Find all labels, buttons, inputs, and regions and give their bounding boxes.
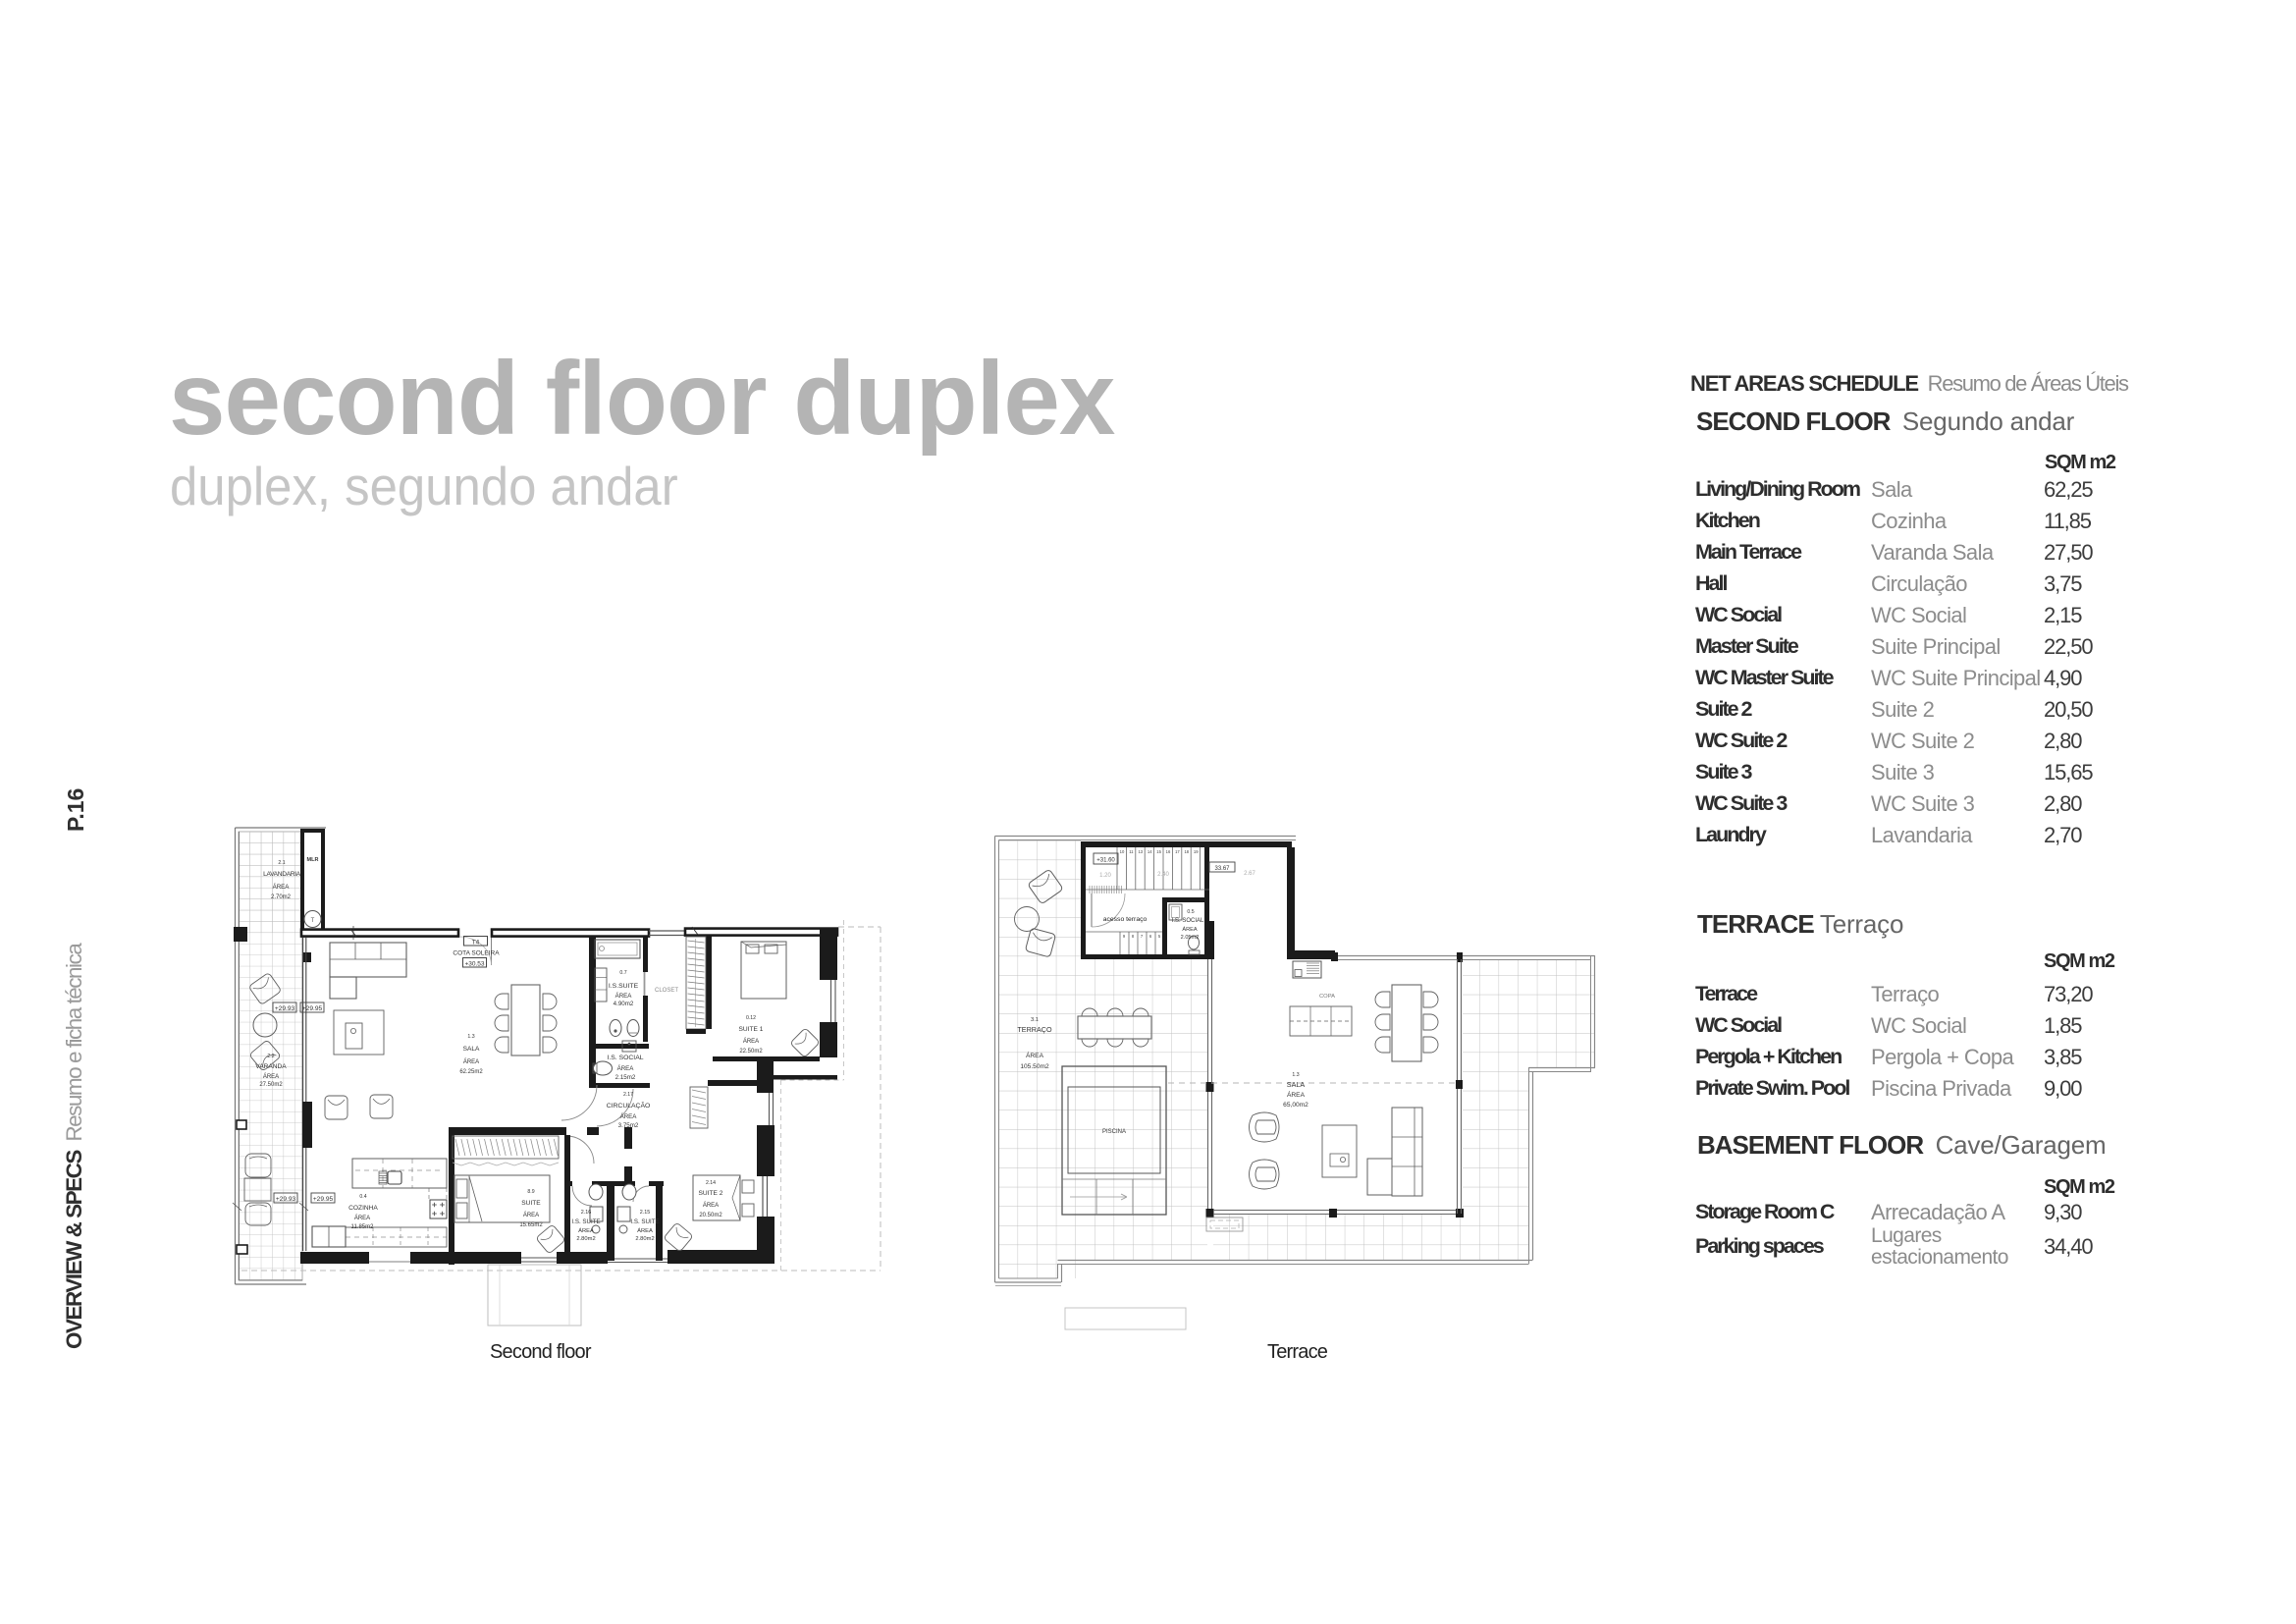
svg-text:2.05m2: 2.05m2 (1181, 935, 1200, 941)
svg-text:9: 9 (1123, 934, 1126, 939)
svg-text:acesso terraço: acesso terraço (1103, 916, 1148, 923)
svg-text:8.9: 8.9 (527, 1189, 534, 1195)
svg-text:+30.53: +30.53 (464, 960, 484, 967)
svg-text:LAVANDARIA: LAVANDARIA (263, 871, 301, 878)
svg-text:62.25m2: 62.25m2 (459, 1069, 483, 1075)
svg-text:6: 6 (1149, 934, 1152, 939)
svg-text:65,00m2: 65,00m2 (1283, 1102, 1308, 1109)
svg-text:0.7: 0.7 (619, 970, 626, 976)
svg-text:33.67: 33.67 (1214, 866, 1230, 872)
svg-text:27.50m2: 27.50m2 (259, 1082, 283, 1088)
svg-text:T4: T4 (472, 939, 480, 946)
svg-text:4.90m2: 4.90m2 (614, 1001, 634, 1007)
svg-text:2.1: 2.1 (278, 860, 285, 866)
svg-text:SALA: SALA (1287, 1080, 1306, 1089)
svg-text:ÁREA: ÁREA (1026, 1051, 1044, 1059)
svg-text:ÁREA: ÁREA (354, 1215, 370, 1221)
svg-text:105.50m2: 105.50m2 (1020, 1063, 1049, 1070)
svg-text:2.80m2: 2.80m2 (635, 1236, 654, 1242)
svg-text:+29.93: +29.93 (276, 1196, 296, 1203)
svg-text:ÁREA: ÁREA (523, 1212, 539, 1218)
svg-text:TERRAÇO: TERRAÇO (1017, 1025, 1052, 1034)
svg-text:MLR: MLR (307, 857, 319, 863)
svg-text:0.12: 0.12 (746, 1015, 756, 1021)
svg-text:COPA: COPA (1319, 994, 1335, 1000)
svg-text:3.75m2: 3.75m2 (618, 1122, 639, 1129)
svg-text:ÁREA: ÁREA (617, 1065, 635, 1072)
svg-text:2.17: 2.17 (623, 1092, 633, 1098)
svg-text:T: T (311, 918, 315, 924)
svg-text:2.70m2: 2.70m2 (271, 894, 292, 900)
svg-text:2.67: 2.67 (1244, 871, 1255, 877)
svg-text:5: 5 (1158, 934, 1161, 939)
svg-text:13: 13 (1138, 849, 1143, 854)
svg-text:CLOSET: CLOSET (655, 988, 678, 994)
svg-text:3.1: 3.1 (1031, 1017, 1039, 1023)
svg-text:COTA SOLEIRA: COTA SOLEIRA (453, 950, 500, 957)
svg-text:2.15: 2.15 (640, 1210, 651, 1216)
svg-text:+31.60: +31.60 (1096, 858, 1115, 864)
svg-text:19: 19 (1194, 849, 1199, 854)
svg-text:I.S.SUITE: I.S.SUITE (609, 983, 639, 990)
svg-text:2.14: 2.14 (706, 1180, 716, 1186)
svg-text:ÁREA: ÁREA (263, 1073, 279, 1080)
svg-text:ÁREA: ÁREA (1182, 926, 1198, 933)
svg-text:I.S. SUITE: I.S. SUITE (630, 1218, 659, 1225)
svg-text:SUITE 1: SUITE 1 (739, 1026, 764, 1033)
svg-text:22.50m2: 22.50m2 (739, 1049, 763, 1055)
svg-text:8: 8 (1132, 934, 1135, 939)
svg-text:2.15m2: 2.15m2 (615, 1074, 636, 1081)
svg-text:ÁREA: ÁREA (578, 1227, 594, 1234)
svg-text:1.3: 1.3 (467, 1034, 474, 1040)
svg-text:17: 17 (1175, 849, 1180, 854)
svg-text:18: 18 (1184, 849, 1189, 854)
svg-text:2.2: 2.2 (267, 1054, 274, 1059)
svg-text:0.4: 0.4 (359, 1194, 366, 1200)
svg-text:SUITE 2: SUITE 2 (699, 1190, 723, 1197)
svg-text:SUITE: SUITE (521, 1200, 541, 1207)
svg-text:ÁREA: ÁREA (637, 1227, 653, 1234)
svg-text:PISCINA: PISCINA (1102, 1129, 1126, 1135)
svg-text:11.85m2: 11.85m2 (351, 1224, 375, 1230)
svg-text:ÁREA: ÁREA (743, 1038, 759, 1045)
svg-text:SALA: SALA (463, 1046, 480, 1053)
svg-text:COZINHA: COZINHA (348, 1205, 378, 1212)
svg-text:15.65m2: 15.65m2 (519, 1222, 543, 1228)
svg-text:ÁREA: ÁREA (273, 884, 291, 891)
svg-text:1.20: 1.20 (1099, 873, 1111, 879)
svg-text:7: 7 (1141, 934, 1144, 939)
svg-text:0.5: 0.5 (1187, 909, 1194, 915)
svg-text:ÁREA: ÁREA (463, 1058, 479, 1065)
svg-text:+29.93: +29.93 (275, 1005, 295, 1012)
svg-text:14: 14 (1148, 849, 1152, 854)
svg-text:+29.95: +29.95 (302, 1005, 323, 1012)
svg-text:15: 15 (1156, 849, 1161, 854)
svg-text:I.S. SUITE: I.S. SUITE (571, 1218, 600, 1225)
svg-text:I.S. SOCIAL: I.S. SOCIAL (607, 1055, 643, 1061)
svg-text:ÁREA: ÁREA (620, 1113, 638, 1120)
svg-text:10: 10 (1120, 849, 1125, 854)
svg-text:CIRCULAÇÃO: CIRCULAÇÃO (607, 1101, 651, 1110)
svg-text:+29.95: +29.95 (313, 1196, 334, 1203)
svg-text:2.16: 2.16 (581, 1210, 592, 1216)
svg-text:2.80m2: 2.80m2 (576, 1236, 595, 1242)
svg-text:ÁREA: ÁREA (615, 993, 633, 1000)
svg-text:20.50m2: 20.50m2 (699, 1213, 722, 1218)
svg-text:1.3: 1.3 (1292, 1072, 1299, 1078)
svg-text:16: 16 (1166, 849, 1171, 854)
svg-text:2.40: 2.40 (1157, 872, 1169, 878)
svg-text:ÁREA: ÁREA (1287, 1090, 1306, 1099)
svg-text:11: 11 (1129, 849, 1134, 854)
svg-text:ÁREA: ÁREA (703, 1202, 719, 1209)
svg-text:I.S. SOCIAL: I.S. SOCIAL (1172, 918, 1204, 924)
